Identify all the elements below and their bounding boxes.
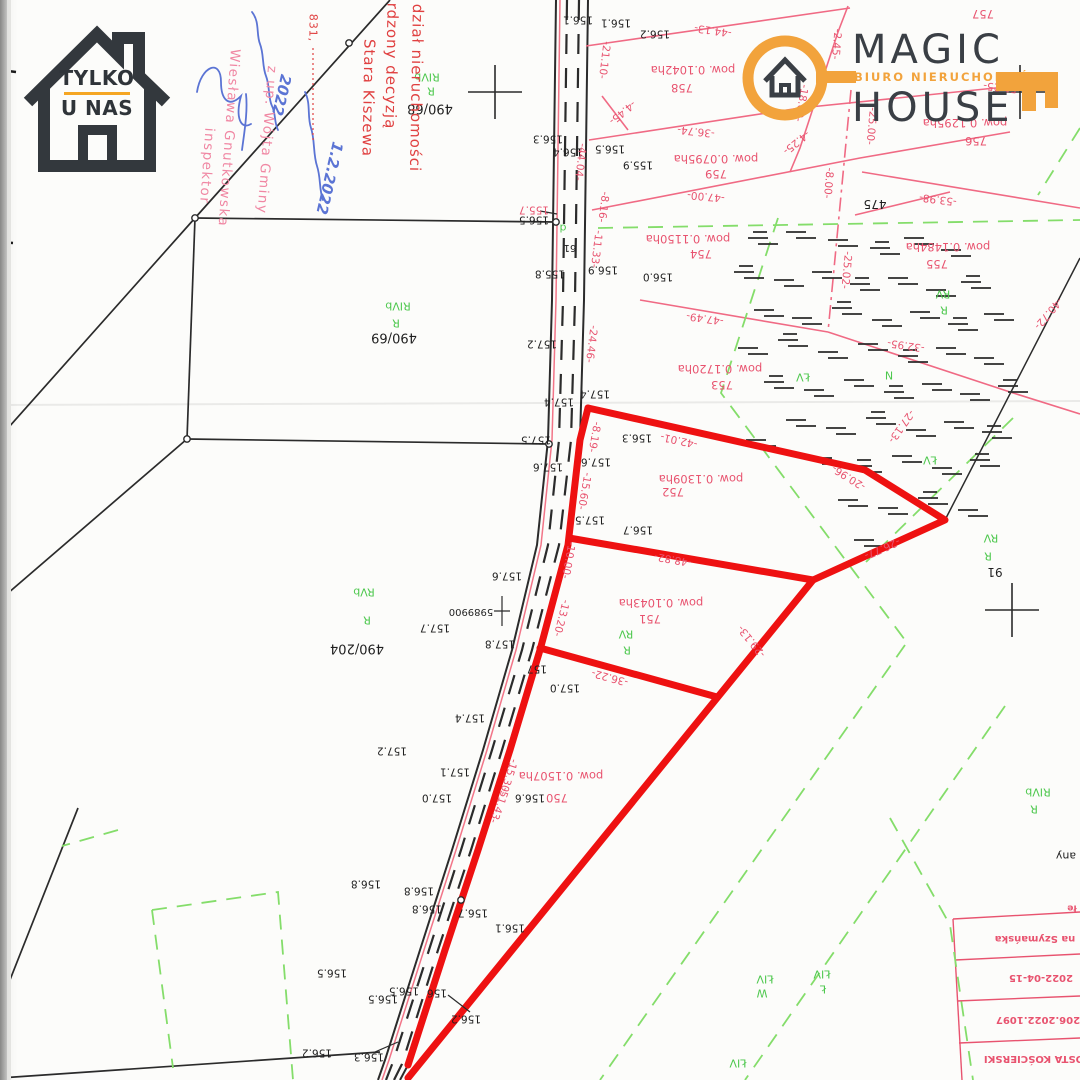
map-label: Ł	[820, 984, 826, 995]
office-stamp-line: Stara Kiszewa	[359, 39, 376, 157]
map-label: 752	[662, 485, 684, 497]
office-stamp-line: 831,	[307, 14, 318, 43]
map-label: 156.0	[643, 271, 673, 282]
map-label: 157.2	[527, 338, 557, 349]
map-label: 157.5	[521, 434, 551, 445]
cadastral-map-listing-image: 156.1156.1156.2156.3156.4156.5155.9156.5…	[0, 0, 1080, 1080]
map-label: 61	[564, 242, 577, 252]
map-label: 754	[690, 247, 712, 259]
map-label: -47.49-	[686, 310, 725, 326]
registry-table-note: łe	[1067, 903, 1076, 912]
map-label: RV	[619, 629, 634, 640]
map-label: 157.5	[575, 514, 605, 525]
handwriting-fragment: 1.2.2022	[313, 140, 344, 216]
map-label: -51.43-	[488, 786, 511, 825]
map-label: 750	[546, 791, 568, 803]
map-label: 156.5	[368, 993, 398, 1004]
wojt-stamp-line: inspektor	[197, 127, 216, 204]
map-label: 156.7	[458, 907, 488, 918]
tylko-u-nas-text: TYLKO U NAS	[58, 68, 136, 119]
map-label: 758	[671, 81, 693, 93]
registry-table-note: any	[1056, 851, 1076, 862]
map-label: 157.4	[580, 388, 610, 399]
map-label: -25.02-	[839, 251, 853, 289]
map-label: pow. 0.1309ha	[659, 472, 744, 484]
map-label: 156.2	[640, 28, 670, 39]
wojt-stamp-line: Wiesława Gnutkowska	[215, 48, 241, 227]
map-label: 157.4	[544, 396, 574, 407]
map-label: -53.98-	[919, 191, 958, 206]
office-stamp-line: rdzony decyzją	[382, 3, 399, 130]
map-label: RIVb	[1025, 787, 1050, 798]
map-label: -42.01-	[659, 431, 698, 449]
map-label: -8.16-	[596, 191, 610, 223]
map-label: R	[623, 645, 631, 656]
map-label: -13.20-	[551, 598, 570, 637]
map-label: -32.95-	[887, 337, 926, 353]
map-label: 157.0	[422, 792, 452, 803]
map-label: pow. 0.1150ha	[646, 232, 731, 244]
office-stamp-line: dział nieruchomości	[407, 4, 425, 173]
map-label: 155.8	[535, 268, 565, 279]
map-label: -20.96-	[830, 463, 867, 492]
map-label: -26.77-	[863, 536, 902, 561]
map-label: ŁV	[923, 455, 937, 466]
map-label: -36.22-	[590, 667, 629, 687]
map-label: 156.2	[451, 1013, 481, 1024]
map-label: 156.1	[495, 922, 525, 933]
map-label: -27.13-	[886, 408, 916, 445]
map-label: 157	[527, 663, 547, 674]
tylko-u-nas-line1: TYLKO	[58, 68, 136, 89]
map-label: -15.60-	[576, 472, 593, 511]
tylko-u-nas-line2: U NAS	[58, 98, 136, 119]
map-label: -48.82-	[654, 551, 693, 568]
map-label: -8.00-	[821, 167, 834, 199]
map-label: 756	[965, 134, 987, 146]
map-label: 157.4	[455, 712, 485, 723]
map-label: 759	[705, 167, 727, 179]
map-label: 753	[711, 378, 733, 390]
map-label: ŁIV	[730, 1058, 747, 1069]
registry-table-row: 206.2022.1097	[996, 1014, 1080, 1024]
map-label: ŁV	[796, 372, 810, 383]
map-label: 5989900	[449, 606, 494, 616]
map-label: N	[885, 370, 893, 381]
tylko-u-nas-underline	[64, 92, 130, 95]
magic-house-word2: HOUSE	[852, 88, 1014, 128]
map-label: 156.5	[595, 143, 625, 154]
magic-house-word1: MAGIC	[852, 30, 1004, 70]
map-label: 490/69	[371, 331, 417, 344]
map-label: 156.5	[519, 214, 549, 225]
map-label: 91	[987, 566, 1002, 578]
map-label: 757	[972, 7, 994, 19]
map-label: -44.13-	[694, 22, 733, 38]
map-label: R	[427, 86, 435, 97]
map-label: 157.1	[440, 766, 470, 777]
scanner-edge-strip-light	[7, 0, 11, 1080]
map-label: -40.72-	[1032, 295, 1064, 331]
map-label: 156	[427, 987, 447, 998]
map-label: pow. 0.1043ha	[619, 596, 704, 608]
map-label: 155.7	[519, 204, 549, 215]
map-label: 755	[926, 257, 948, 269]
map-label: RV	[936, 289, 951, 300]
map-label: RIVb	[385, 301, 410, 312]
map-label: 157.8	[485, 638, 515, 649]
map-label: 157.6	[533, 461, 563, 472]
map-label: 156.3	[533, 133, 563, 144]
map-label: -8.19-	[586, 421, 602, 453]
map-label: ŁIV	[814, 969, 831, 980]
registry-table-row: 2022-04-15	[1009, 972, 1073, 982]
map-label: RVb	[353, 587, 375, 598]
map-label: d	[560, 223, 567, 234]
map-label: 156.1	[601, 17, 631, 28]
map-label: -4.25-	[781, 128, 811, 156]
map-label: W	[757, 988, 768, 999]
map-label: -24.46-	[583, 325, 598, 364]
map-label: 490/204	[330, 642, 384, 655]
map-label: 157.0	[550, 682, 580, 693]
map-label: R	[363, 615, 371, 626]
map-label: -47.00-	[687, 189, 725, 203]
map-label: pow. 0.1720ha	[678, 362, 763, 374]
map-label: 156.2	[302, 1047, 332, 1058]
map-label: 156.6	[515, 792, 545, 803]
map-label: 156.3	[622, 432, 652, 443]
registry-table-row: OSTA KOŚCIERSKI	[984, 1053, 1080, 1063]
map-label: pow. 0.0795ha	[674, 152, 759, 164]
map-label: 156.8	[412, 903, 442, 914]
map-label: -21.10-	[596, 41, 611, 80]
map-label: 157.6	[492, 570, 522, 581]
map-label: 157.6	[581, 456, 611, 467]
map-label: 157.2	[377, 745, 407, 756]
scanner-edge-strip	[0, 0, 7, 1080]
map-label: 156.8	[404, 885, 434, 896]
magic-house-subtitle: BIURO NIERUCHOMOŚCI	[854, 72, 1047, 84]
map-label: pow. 0.1507ha	[519, 769, 604, 781]
map-label: R	[1030, 804, 1038, 815]
map-label: R	[984, 551, 992, 562]
map-label: 156.5	[317, 967, 347, 978]
map-label: pow. 0.1042ha	[651, 63, 736, 75]
map-label: 155.9	[623, 159, 653, 170]
map-label: 751	[639, 612, 661, 624]
registry-table-row: na Szymańska	[995, 933, 1076, 943]
map-label: R	[940, 305, 948, 316]
map-label: R	[392, 318, 400, 329]
map-label: -4.45-	[607, 98, 637, 126]
tylko-u-nas-logo: TYLKO U NAS	[22, 20, 172, 175]
map-label: 156.1	[563, 14, 593, 25]
map-label: 157.7	[420, 622, 450, 633]
map-label: 156.3	[354, 1051, 384, 1062]
map-label: 156.7	[623, 524, 653, 535]
map-label: ŁIV	[757, 974, 774, 985]
map-label: pow. 0.1484ha	[906, 240, 991, 252]
map-label: 156.8	[351, 878, 381, 889]
map-label: 475	[864, 198, 887, 210]
map-label: -29.13-	[736, 623, 768, 659]
magic-house-logo: MAGIC BIURO NIERUCHOMOŚCI HOUSE	[740, 26, 1078, 128]
map-label: RV	[984, 533, 999, 544]
map-label: -36.74-	[677, 124, 716, 138]
map-label: -10.00-	[560, 541, 577, 580]
